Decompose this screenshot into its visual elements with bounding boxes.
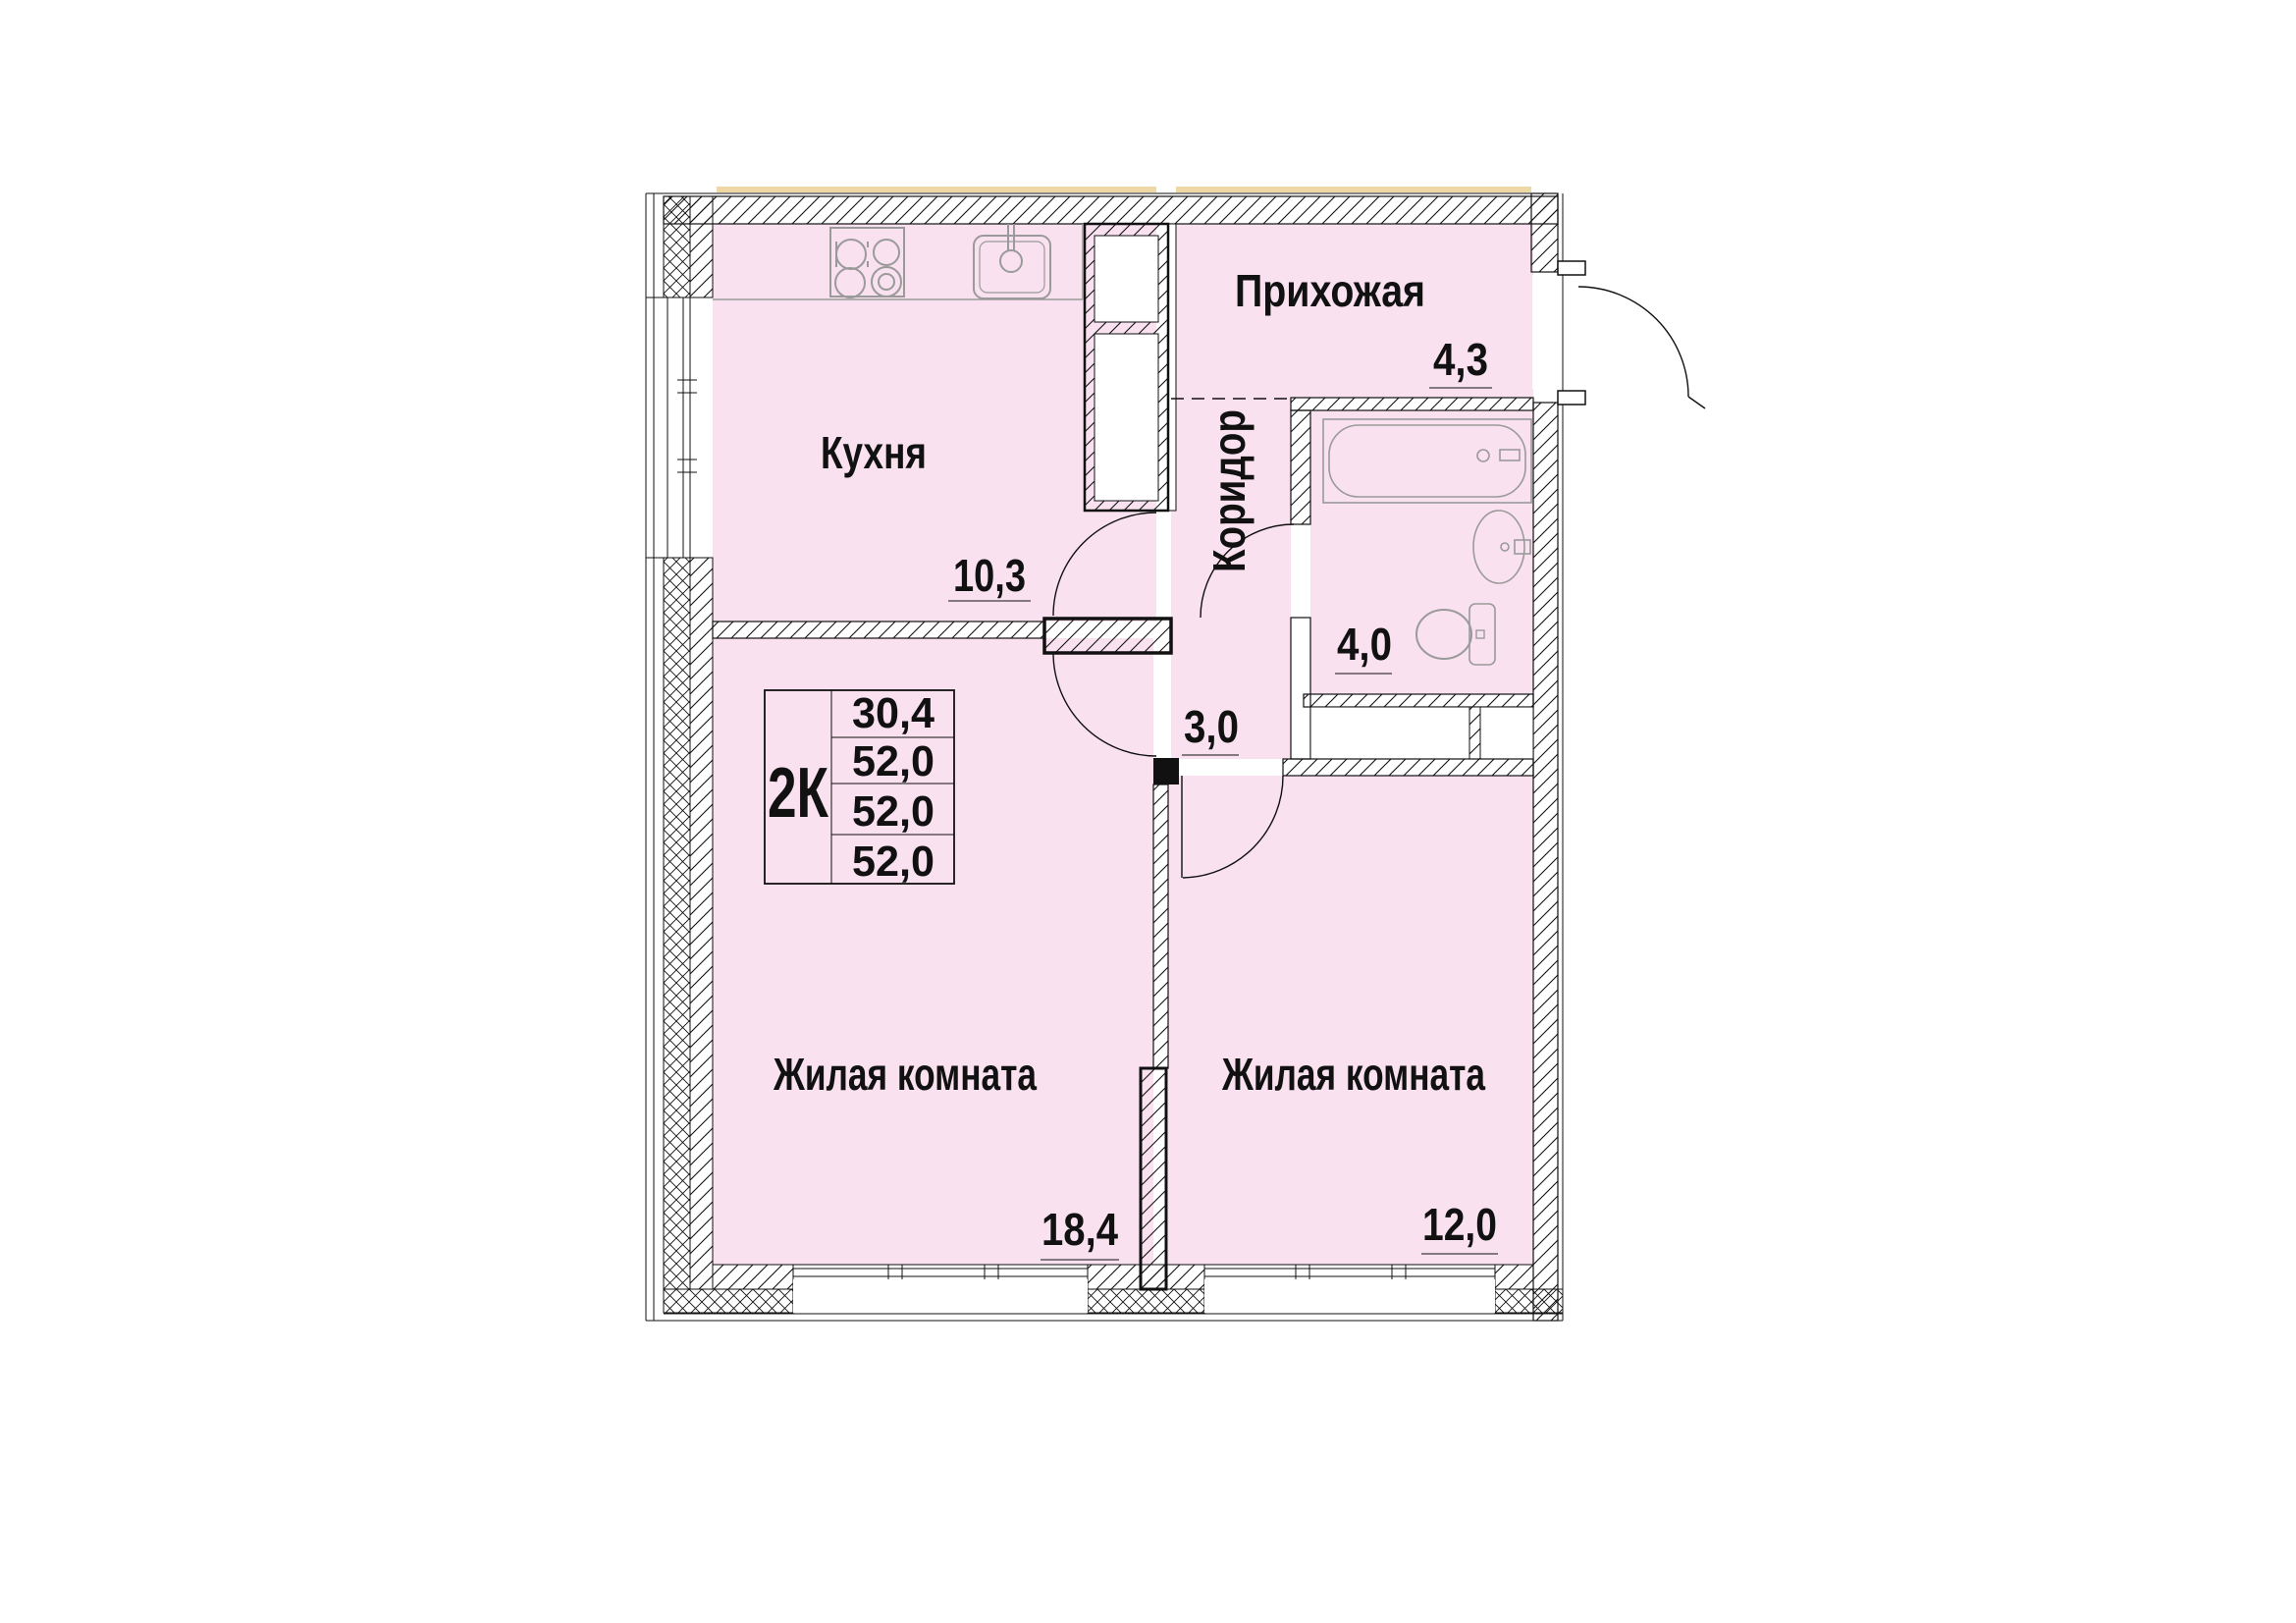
wall-bottom-seg-1 xyxy=(713,1265,793,1289)
doorway-living-2 xyxy=(1181,759,1283,776)
wall-bathroom-bottom xyxy=(1304,694,1533,707)
wall-stub xyxy=(1153,758,1179,784)
bathroom-area: 4,0 xyxy=(1337,619,1392,670)
wall-corridor-bottom xyxy=(1283,759,1533,776)
floor-plan-canvas: 2К 30,4 52,0 52,0 52,0 Кухня 10,3 Прихож… xyxy=(0,0,2296,1623)
wall-bottom-insulation-2 xyxy=(1088,1289,1204,1313)
niche-under-bathroom xyxy=(1310,707,1533,759)
wall-left-lower-insulation xyxy=(664,558,690,1289)
summary-row-1: 30,4 xyxy=(852,689,935,737)
wall-bottom-insulation-3 xyxy=(1495,1289,1563,1313)
wall-kitchen-living xyxy=(713,622,1044,638)
kitchen-area: 10,3 xyxy=(953,550,1026,601)
wall-bottom-seg-3 xyxy=(1495,1265,1533,1289)
wall-bathroom-left-lower xyxy=(1291,618,1310,759)
summary-row-2: 52,0 xyxy=(852,737,934,785)
doorway-kitchen xyxy=(1156,511,1171,619)
doorway-living-1 xyxy=(1153,653,1171,758)
corridor-label: Коридор xyxy=(1203,409,1255,572)
vent-shaft xyxy=(1085,224,1168,511)
entrance-jamb-bottom xyxy=(1558,391,1585,405)
living-1-label: Жилая комната xyxy=(773,1049,1037,1100)
window-living-1 xyxy=(793,1265,1088,1313)
wall-right-entrance-pillar xyxy=(1531,193,1558,272)
wall-hallway-bathroom xyxy=(1291,398,1533,410)
wall-left-upper-insulation xyxy=(664,196,690,298)
wall-left-lower xyxy=(690,558,713,1289)
living-1-area: 18,4 xyxy=(1041,1204,1118,1255)
wall-top xyxy=(664,196,1558,224)
wall-right xyxy=(1533,403,1558,1321)
hallway-label: Прихожая xyxy=(1235,265,1425,316)
window-kitchen xyxy=(646,298,713,558)
niche-divider xyxy=(1469,707,1480,759)
wall-between-living-rooms xyxy=(1153,784,1168,1068)
wall-left-upper xyxy=(690,196,713,298)
entrance-opening xyxy=(1532,275,1559,389)
summary-row-3: 52,0 xyxy=(852,787,934,836)
doorway-bathroom xyxy=(1294,524,1310,618)
living-2-area: 12,0 xyxy=(1422,1199,1497,1250)
living-2-label: Жилая комната xyxy=(1221,1049,1485,1100)
summary-row-4: 52,0 xyxy=(852,838,934,886)
kitchen-label: Кухня xyxy=(821,427,927,478)
unit-type-label: 2К xyxy=(768,754,829,833)
floor-plan: 2К 30,4 52,0 52,0 52,0 Кухня 10,3 Прихож… xyxy=(0,0,2296,1623)
wall-bottom-insulation-1 xyxy=(664,1289,793,1313)
hallway-area: 4,3 xyxy=(1433,334,1488,385)
room-living-2 xyxy=(1168,776,1533,1265)
entrance-jamb-top xyxy=(1558,261,1585,275)
corridor-area: 3,0 xyxy=(1184,701,1239,752)
wall-bathroom-left-upper xyxy=(1291,410,1310,524)
wall-lintel xyxy=(1044,619,1171,653)
wall-pier xyxy=(1141,1068,1166,1289)
window-living-2 xyxy=(1204,1265,1495,1313)
